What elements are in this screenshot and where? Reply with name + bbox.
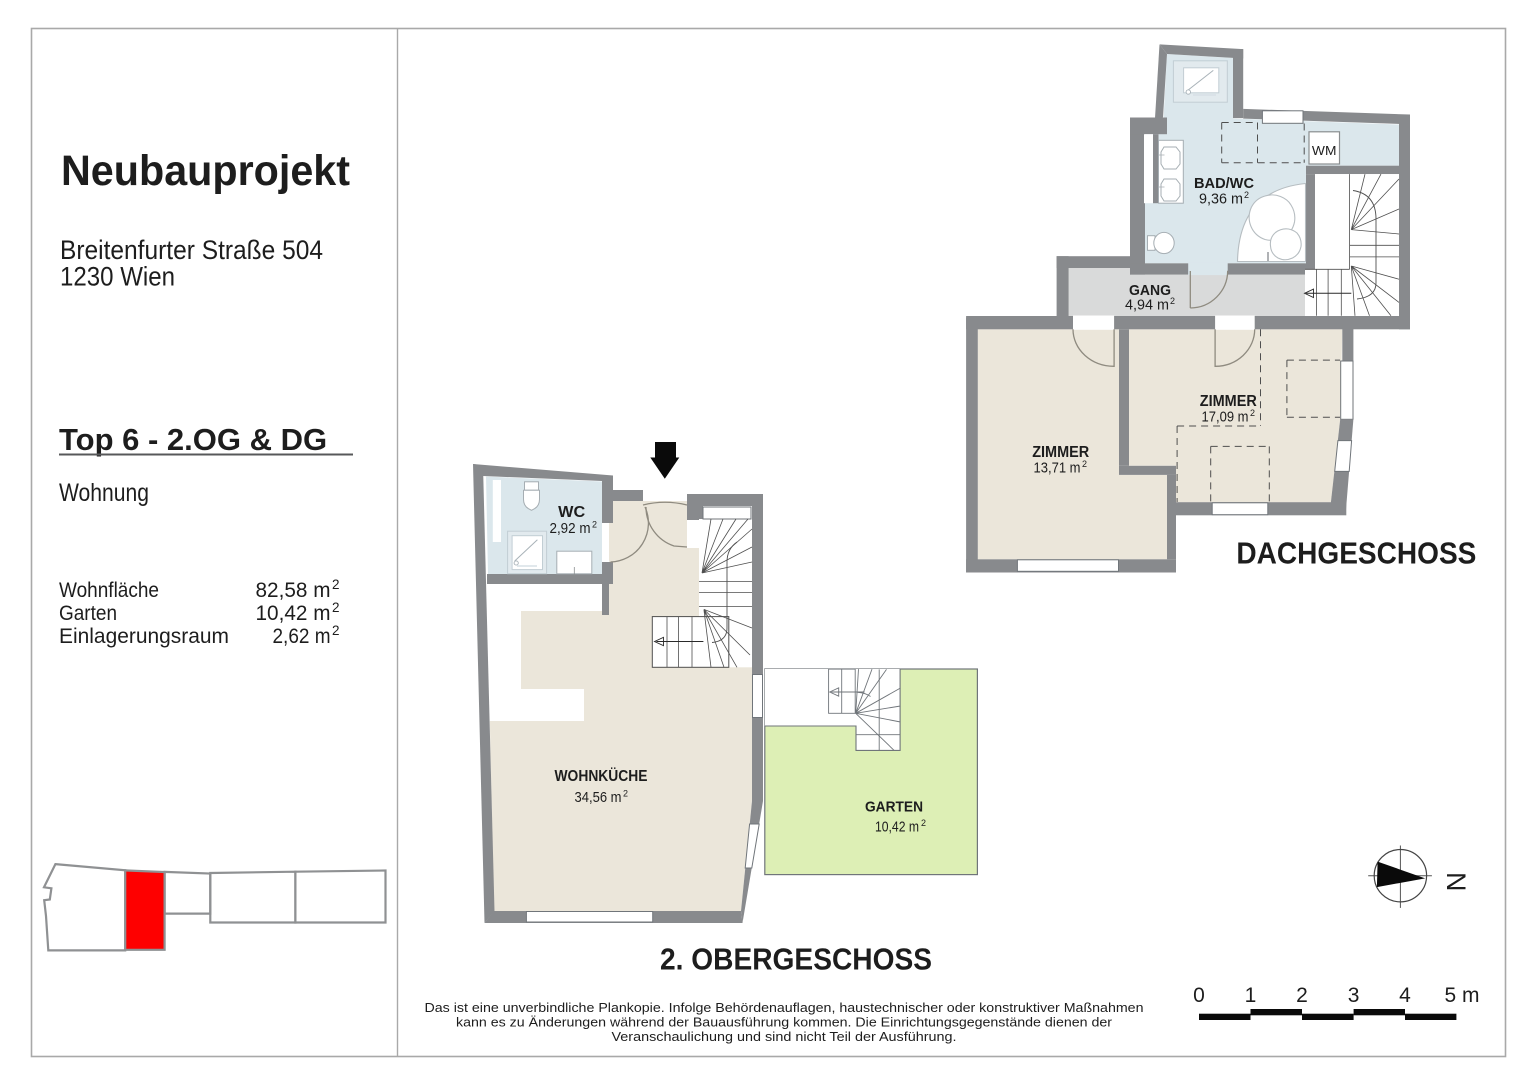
svg-text:4,94 m: 4,94 m [1125,298,1169,314]
svg-text:N: N [1441,872,1471,892]
svg-text:5 m: 5 m [1444,984,1479,1007]
svg-text:2: 2 [1244,190,1249,200]
svg-text:WM: WM [1312,144,1337,158]
svg-text:1230 Wien: 1230 Wien [60,262,175,292]
svg-text:0: 0 [1193,984,1205,1007]
svg-text:2: 2 [1296,984,1308,1007]
svg-text:2: 2 [1082,459,1087,469]
svg-text:Das ist eine unverbindliche Pl: Das ist eine unverbindliche Plankopie. I… [425,1000,1144,1015]
svg-text:Wohnung: Wohnung [59,479,149,507]
svg-text:13,71 m: 13,71 m [1034,460,1081,477]
svg-text:82,58 m: 82,58 m [256,579,331,602]
svg-text:2: 2 [332,623,340,638]
svg-text:1: 1 [1245,984,1257,1007]
svg-text:DACHGESCHOSS: DACHGESCHOSS [1236,536,1476,571]
svg-text:10,42 m: 10,42 m [256,602,331,625]
svg-text:GARTEN: GARTEN [865,799,923,816]
svg-text:Neubauprojekt: Neubauprojekt [61,147,350,195]
svg-text:2: 2 [332,600,340,615]
svg-text:Breitenfurter Straße 504: Breitenfurter Straße 504 [60,235,323,265]
svg-text:2: 2 [332,577,340,592]
svg-text:2,92 m: 2,92 m [550,521,591,537]
svg-text:kann es zu Änderungen während: kann es zu Änderungen während der Bauaus… [456,1015,1113,1030]
svg-text:Einlagerungsraum: Einlagerungsraum [59,625,229,648]
svg-text:Veranschaulichung und sind nic: Veranschaulichung und sind nicht Teil de… [612,1029,957,1044]
svg-text:3: 3 [1348,984,1360,1007]
svg-text:ZIMMER: ZIMMER [1200,393,1257,410]
svg-text:Top 6 - 2.OG & DG: Top 6 - 2.OG & DG [59,422,327,457]
svg-text:2: 2 [921,818,926,828]
svg-text:34,56 m: 34,56 m [575,789,622,806]
svg-text:2: 2 [1250,408,1255,418]
svg-text:2. OBERGESCHOSS: 2. OBERGESCHOSS [660,942,932,977]
svg-text:WC: WC [558,504,585,521]
svg-text:Wohnfläche: Wohnfläche [59,579,159,602]
svg-text:WOHNKÜCHE: WOHNKÜCHE [555,766,648,785]
svg-text:10,42 m: 10,42 m [875,819,919,836]
svg-text:2,62 m: 2,62 m [273,625,331,648]
svg-text:4: 4 [1399,984,1411,1007]
svg-text:GANG: GANG [1129,282,1171,299]
svg-text:Garten: Garten [59,602,117,625]
svg-text:2: 2 [592,520,597,530]
svg-text:17,09 m: 17,09 m [1202,409,1249,426]
svg-text:ZIMMER: ZIMMER [1032,444,1089,461]
svg-text:2: 2 [623,789,628,799]
svg-text:9,36 m: 9,36 m [1199,192,1243,208]
svg-text:2: 2 [1170,296,1175,306]
